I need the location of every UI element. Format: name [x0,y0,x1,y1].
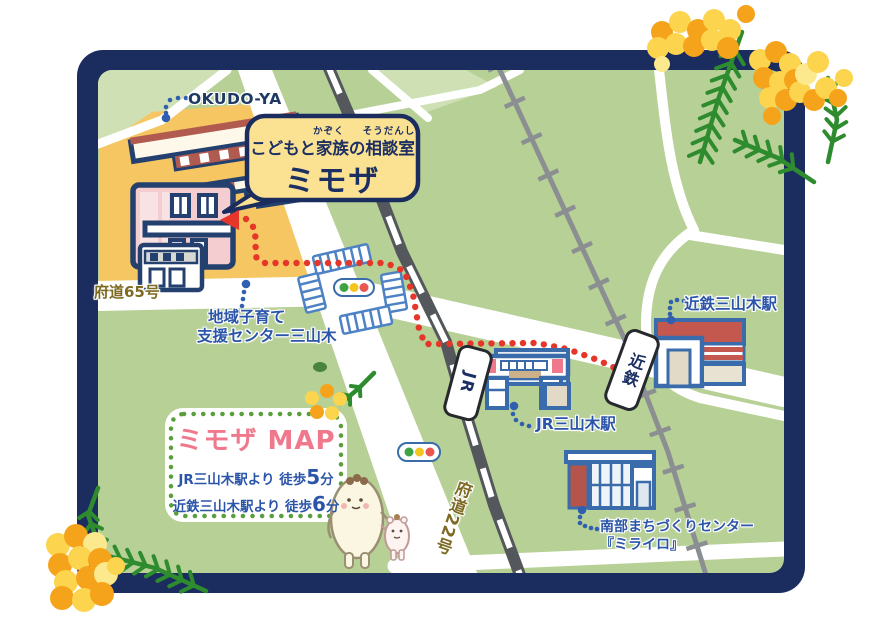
nanbu-center-label-line1: 南部まちづくりセンター [600,516,754,536]
kintetsu-station-label: 近鉄三山木駅 [684,292,777,314]
okudoya-label: OKUDO-YA [188,90,282,108]
mirairo-building [566,452,654,508]
jr-station-label: JR三山木駅 [536,412,616,434]
shien-center-label-line2: 支援センター三山木 [197,324,337,346]
map-box-title: ミモザ MAP [165,420,347,457]
traffic-light-icon [334,279,374,296]
traffic-light-icon [398,443,440,461]
callout-title: ミモザ [247,156,418,200]
kintetsu-miyamaki-station-building [656,320,744,386]
nanbu-center-label-line2: 『ミライロ』 [600,534,684,554]
callout-text: かぞく そうだんしつ こどもと家族の相談室 ミモザ [247,116,418,200]
fudo65-road-label: 府道65号 [94,281,160,302]
map-info-box-text: ミモザ MAP JR三山木駅より 徒歩5分 近鉄三山木駅より 徒歩6分 [165,408,347,522]
route1-walk-time: JR三山木駅より 徒歩5分 [165,465,347,489]
route2-walk-time: 近鉄三山木駅より 徒歩6分 [165,492,347,516]
mimosa-access-map: OKUDO-YA かぞく そうだんしつ こどもと家族の相談室 ミモザ 府道65号… [0,0,869,643]
